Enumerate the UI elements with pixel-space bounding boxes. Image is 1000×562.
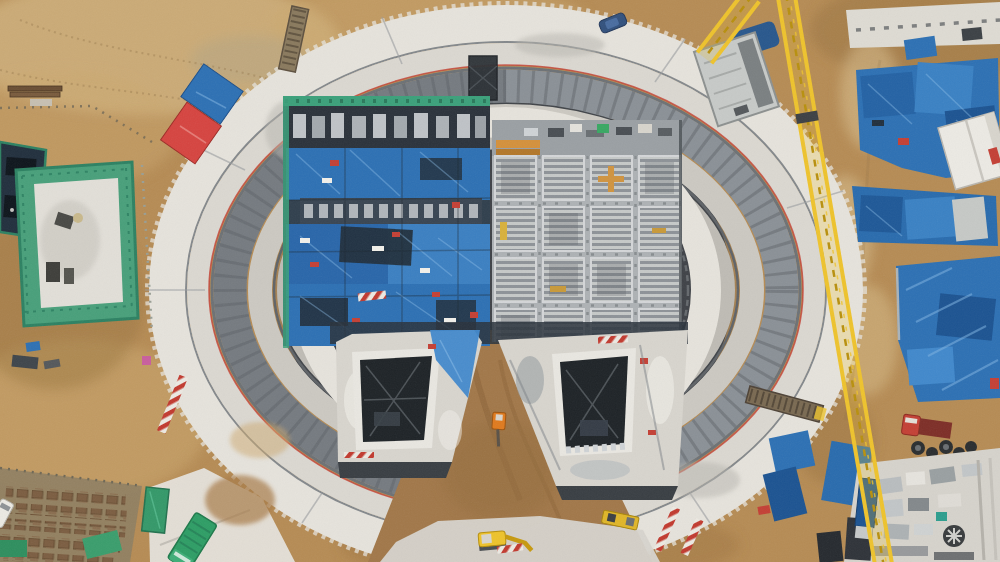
photo-canvas [0, 0, 1000, 562]
aerial-photo [0, 0, 1000, 562]
grain-overlay [0, 0, 1000, 562]
